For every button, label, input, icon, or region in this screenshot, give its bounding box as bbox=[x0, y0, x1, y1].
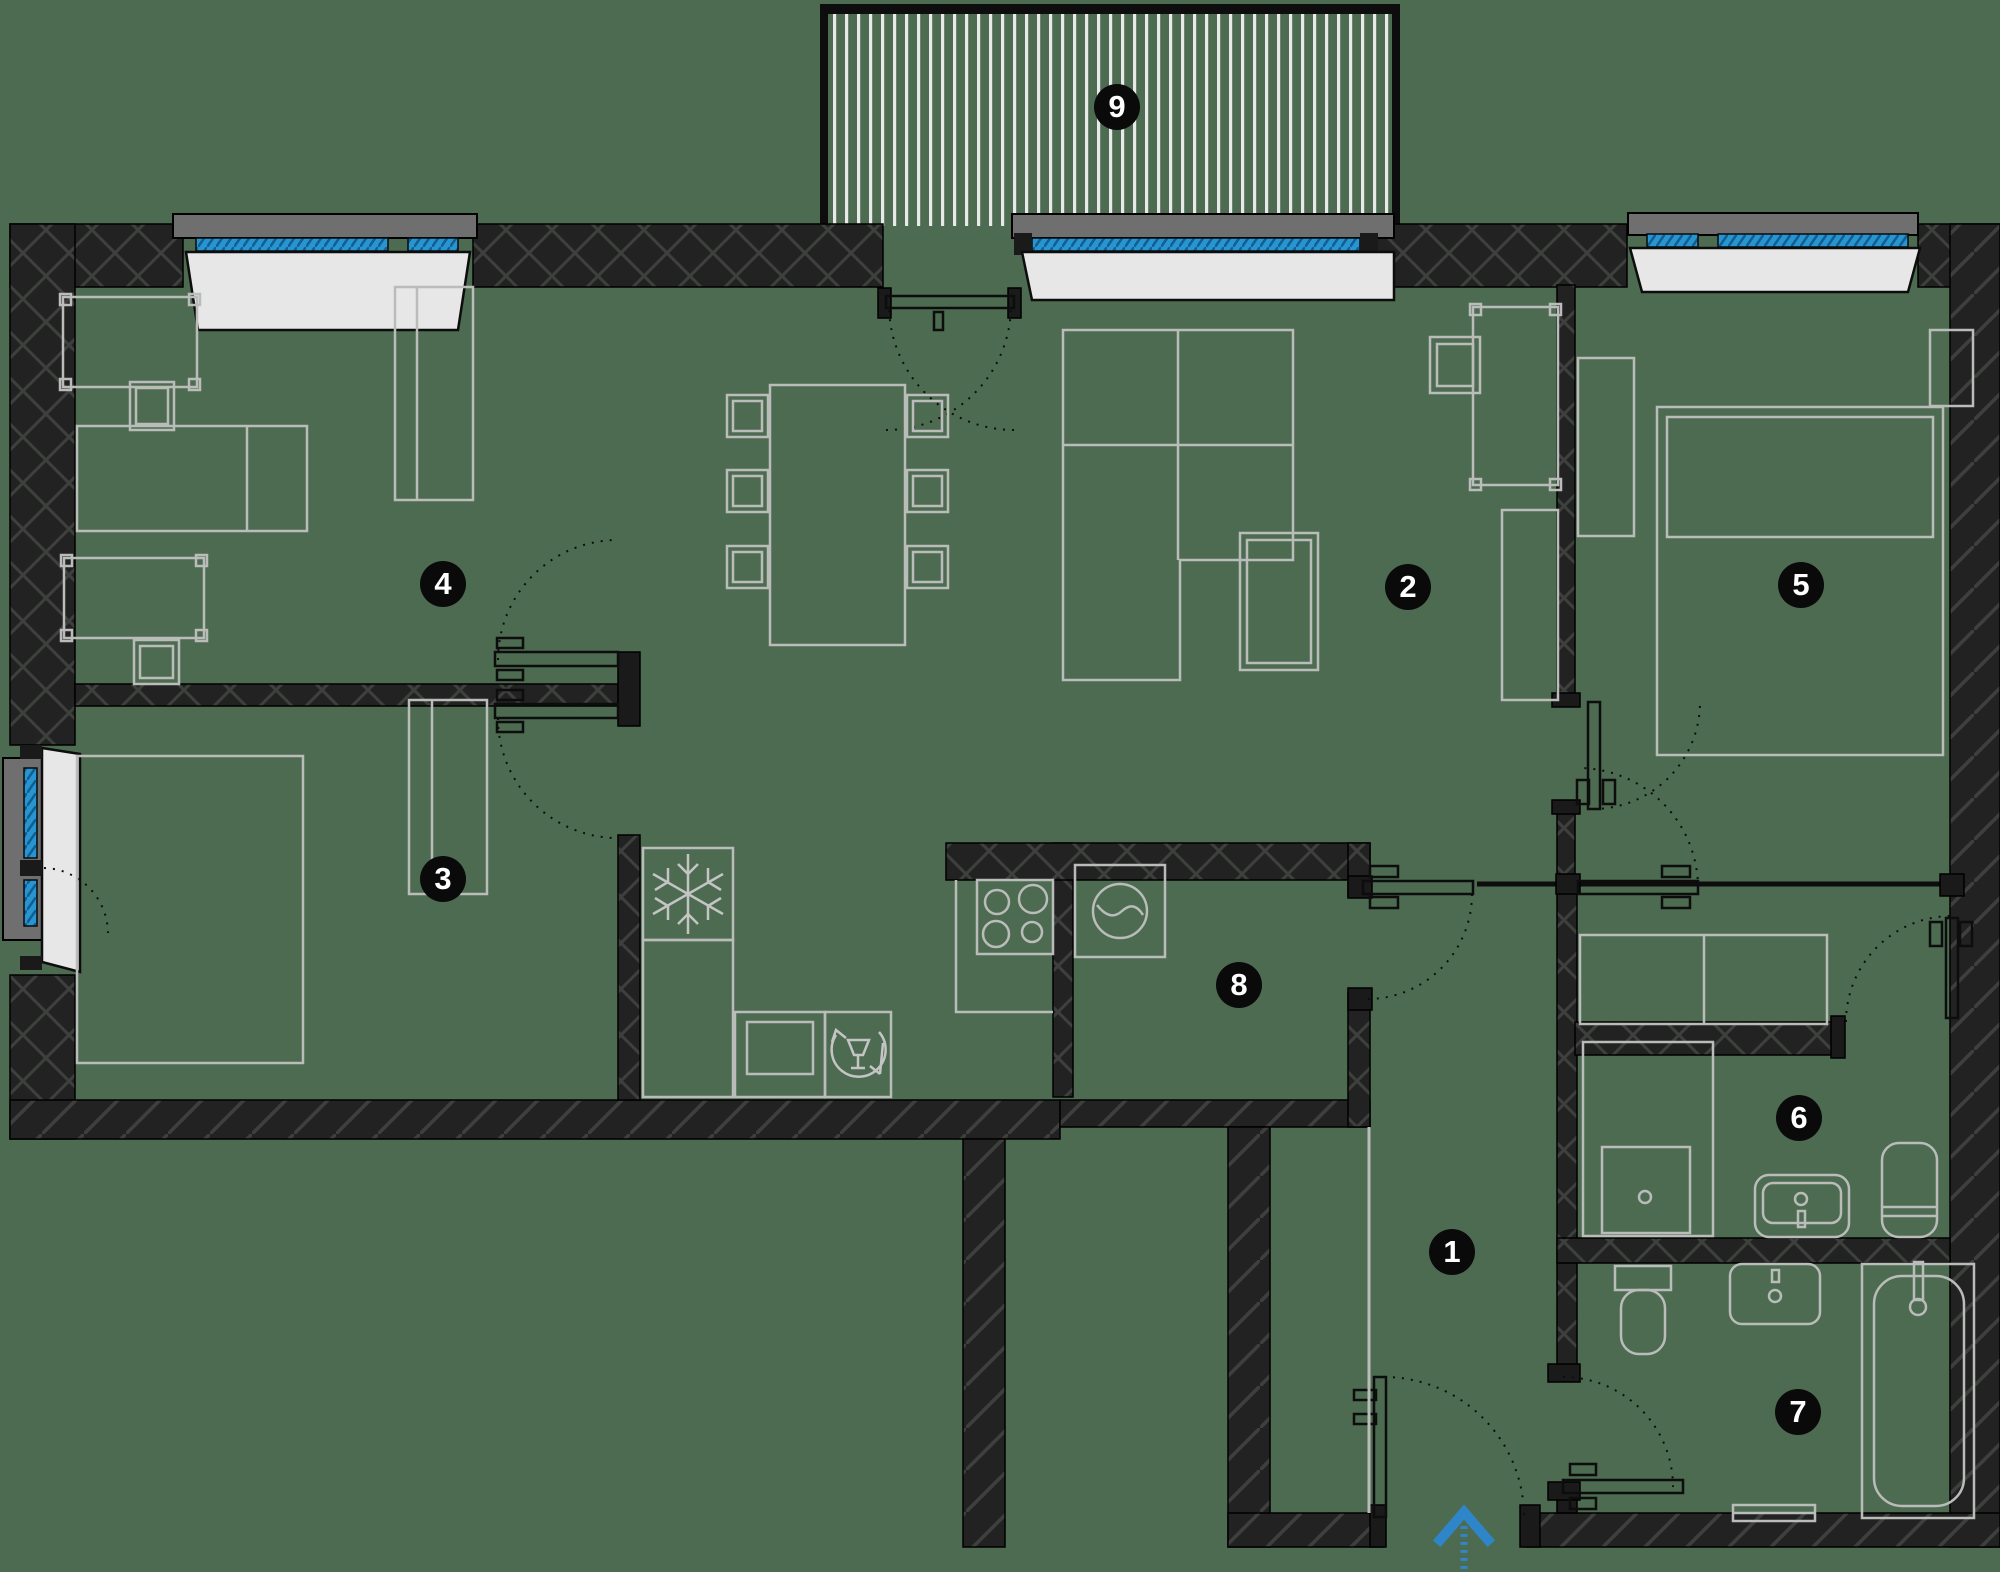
room-label-9: 9 bbox=[1094, 84, 1140, 130]
door-room8 bbox=[1363, 866, 1473, 999]
room-label-6: 6 bbox=[1776, 1095, 1822, 1141]
window-living-room bbox=[1012, 214, 1394, 300]
desk-room3 bbox=[61, 555, 207, 641]
desk-room2 bbox=[1470, 304, 1561, 490]
toilet bbox=[1615, 1266, 1671, 1354]
coffee-table bbox=[1240, 533, 1318, 670]
nook-wardrobe bbox=[1580, 935, 1827, 1024]
door-living-room bbox=[1578, 768, 1698, 908]
room-label-3: 3 bbox=[420, 856, 466, 902]
kitchen-stove bbox=[977, 880, 1053, 954]
desk-room4 bbox=[60, 294, 200, 390]
room-label-2: 2 bbox=[1385, 564, 1431, 610]
washbasin-room6 bbox=[1755, 1175, 1849, 1237]
chair-room2 bbox=[1430, 337, 1480, 393]
chair-room3 bbox=[134, 640, 179, 684]
chair-room4 bbox=[130, 382, 174, 430]
washbasin-room7 bbox=[1730, 1264, 1820, 1324]
dishwasher-icon bbox=[832, 1030, 886, 1077]
window-room5 bbox=[1628, 213, 1920, 292]
bed-room4 bbox=[77, 426, 307, 531]
window-room4 bbox=[173, 214, 477, 330]
door-frames bbox=[878, 288, 1964, 1547]
room-label-5: 5 bbox=[1778, 562, 1824, 608]
door-room7 bbox=[1563, 1377, 1683, 1509]
snowflake-icon bbox=[653, 854, 723, 934]
kitchen-cabinet bbox=[643, 940, 733, 1097]
room-label-7: 7 bbox=[1775, 1389, 1821, 1435]
interior-walls bbox=[75, 285, 1950, 1513]
door-room3 bbox=[495, 690, 618, 838]
kitchen-sink-unit bbox=[735, 1012, 825, 1097]
floor-plan: 1 2 3 4 5 6 7 8 9 bbox=[0, 0, 2000, 1572]
wardrobe-room2 bbox=[1502, 510, 1558, 700]
kitchen-stove-counter bbox=[956, 880, 1053, 1012]
floor-plan-svg bbox=[0, 0, 2000, 1572]
entrance-arrow-icon bbox=[1440, 1512, 1488, 1572]
furniture bbox=[60, 287, 1974, 1521]
room-label-4: 4 bbox=[420, 561, 466, 607]
boiler bbox=[1882, 1143, 1937, 1237]
dining-chairs bbox=[727, 395, 948, 588]
window-room3 bbox=[3, 745, 108, 972]
shower bbox=[1583, 1042, 1713, 1236]
dining-table bbox=[770, 385, 905, 645]
door-room4 bbox=[495, 540, 618, 680]
room-label-8: 8 bbox=[1216, 962, 1262, 1008]
sofa bbox=[1063, 330, 1293, 680]
wardrobe-room5 bbox=[1578, 358, 1634, 536]
room-label-1: 1 bbox=[1429, 1229, 1475, 1275]
door-entrance bbox=[1354, 1377, 1524, 1517]
bed-room3 bbox=[77, 756, 303, 1063]
